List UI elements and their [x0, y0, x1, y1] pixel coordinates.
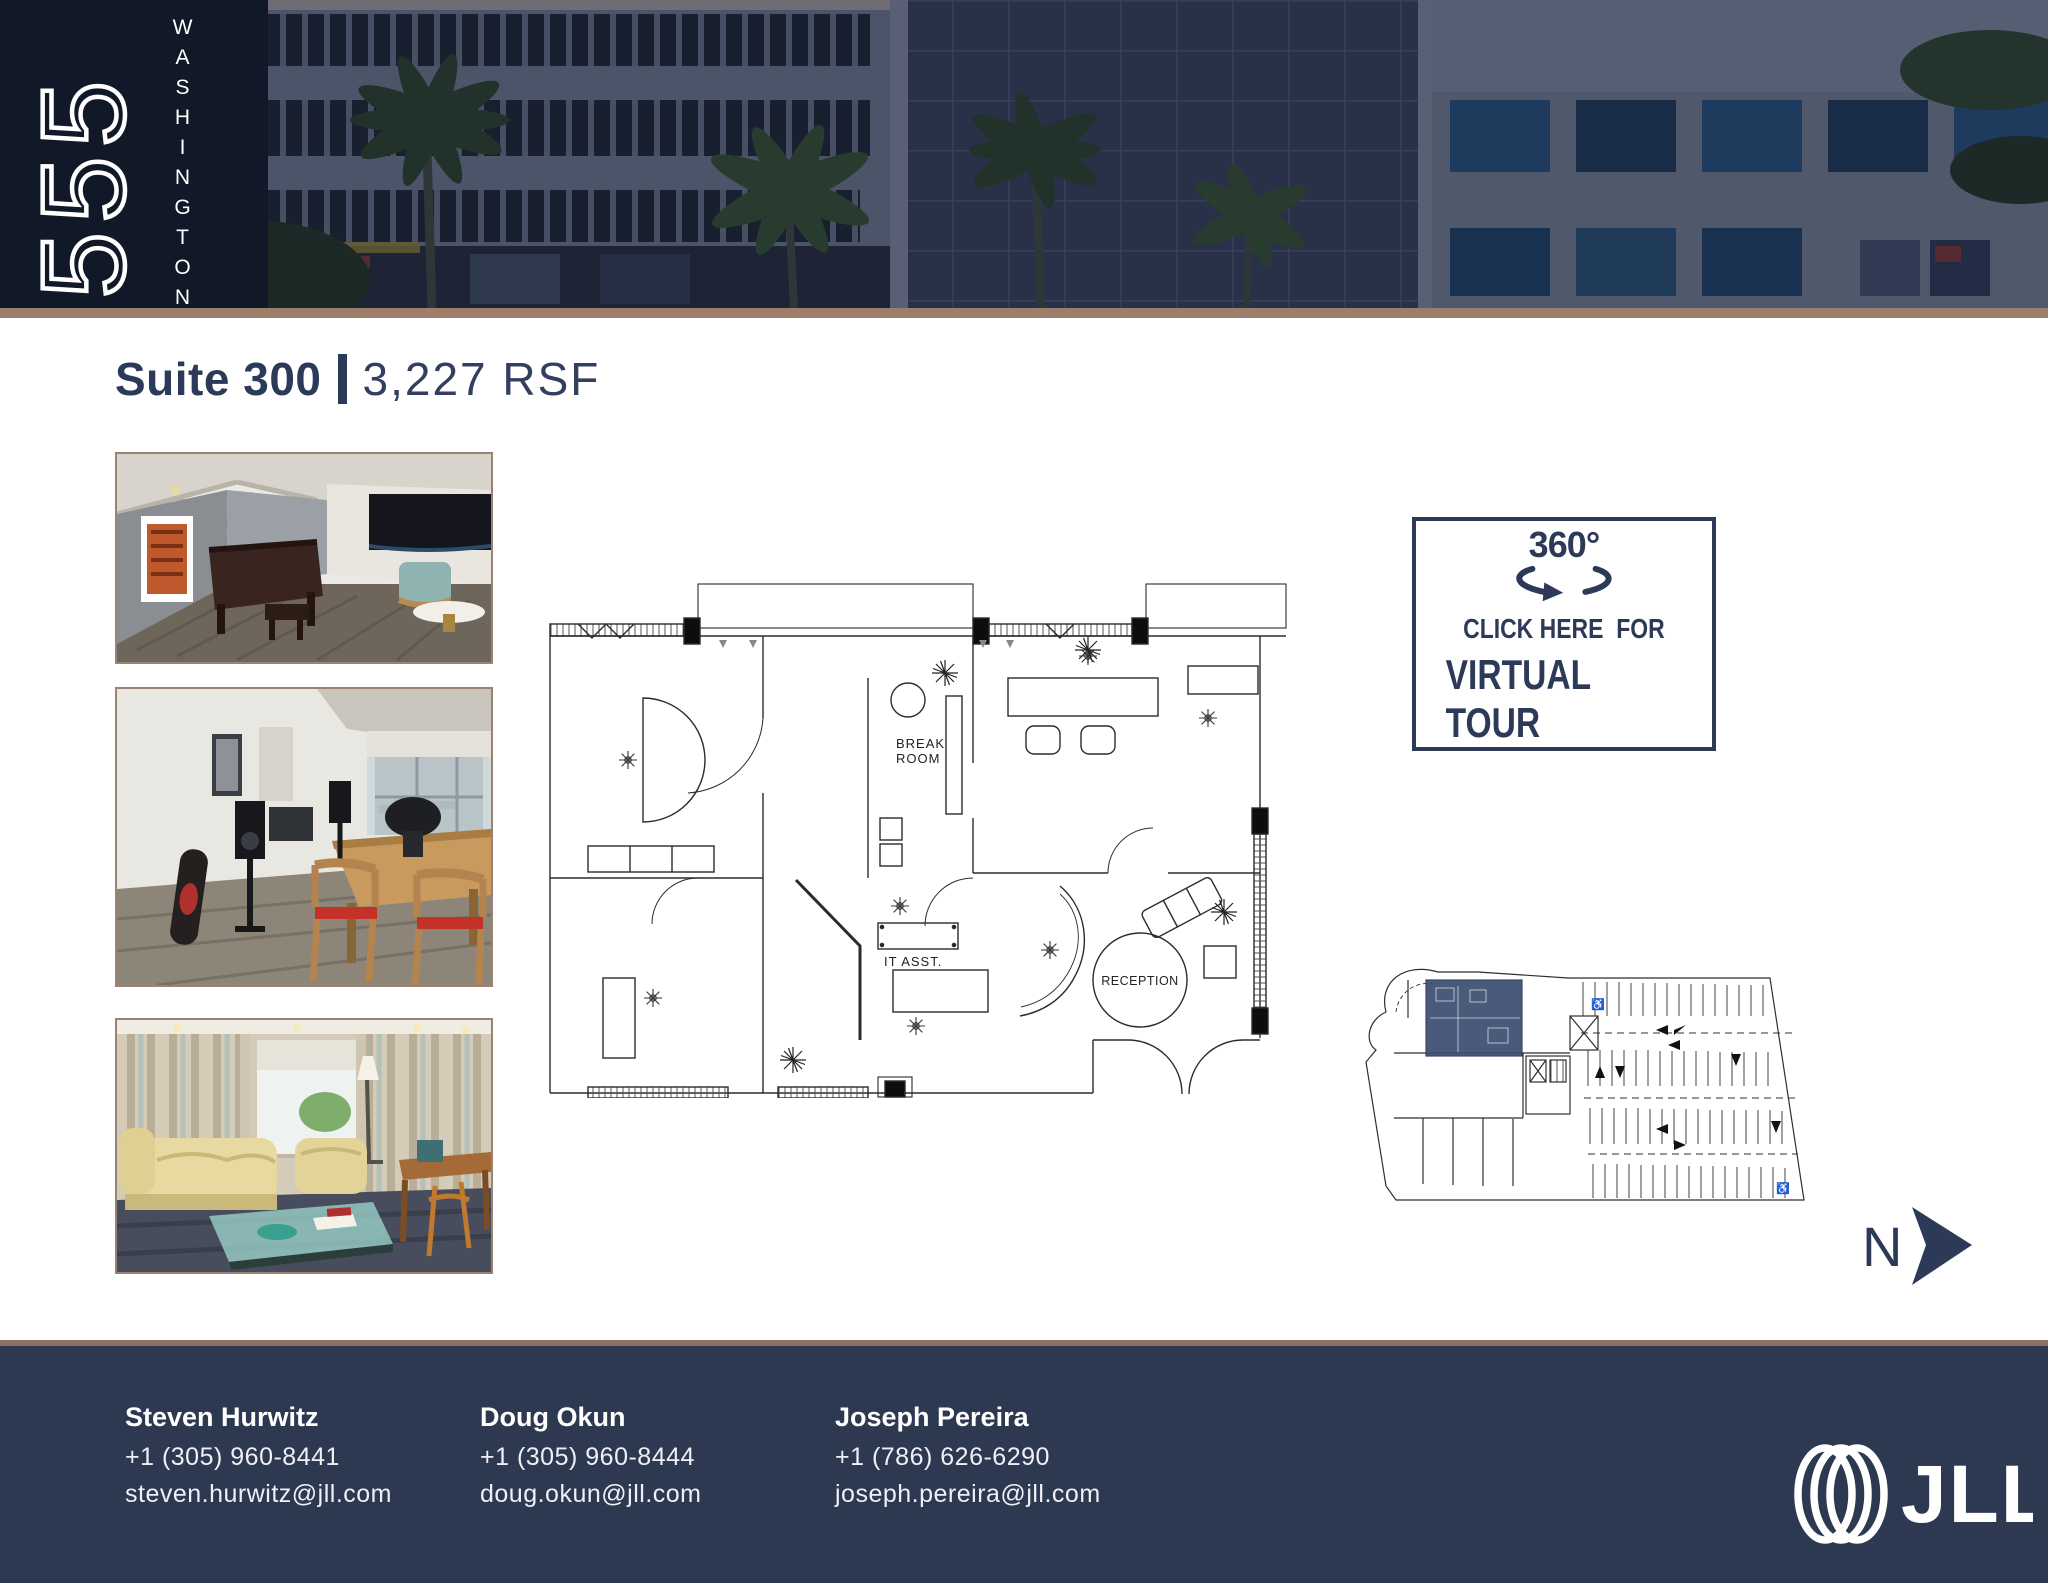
- north-arrow-icon: [1910, 1205, 1976, 1287]
- jll-wordmark: JLL: [1901, 1449, 2033, 1540]
- jll-logo: JLL: [1783, 1440, 2033, 1555]
- suite-floor-plan: BREAK ROOM IT ASST.: [548, 578, 1288, 1098]
- contact-steven-hurwitz: Steven Hurwitz +1 (305) 960-8441 steven.…: [125, 1402, 392, 1517]
- svg-text:BREAK: BREAK: [896, 736, 945, 751]
- svg-text:360°: 360°: [1529, 525, 1600, 565]
- jll-globe-icon: [1798, 1448, 1884, 1540]
- key-plan: ♿ ♿: [1338, 958, 1818, 1213]
- photo-lounge-piano-image: [117, 454, 491, 662]
- virtual-tour-line2: VIRTUAL TOUR: [1446, 651, 1683, 747]
- 555-washington-logo: 555 WASHINGTON: [0, 0, 268, 308]
- contact-email[interactable]: joseph.pereira@jll.com: [835, 1480, 1101, 1509]
- suite-size: 3,227 RSF: [363, 352, 601, 406]
- contact-name: Steven Hurwitz: [125, 1402, 392, 1433]
- photo-den-sofa-image: [117, 1020, 491, 1272]
- svg-text:♿: ♿: [1776, 1182, 1790, 1195]
- title-divider: [338, 354, 347, 404]
- photo-office-desk-image: [117, 689, 491, 985]
- logo-washington-text: WASHINGTON: [172, 16, 193, 302]
- virtual-tour-line1: CLICK HERE FOR: [1463, 613, 1665, 645]
- photo-office-desk: [115, 687, 493, 987]
- contact-doug-okun: Doug Okun +1 (305) 960-8444 doug.okun@jl…: [480, 1402, 702, 1517]
- north-indicator: N: [1862, 1205, 1976, 1287]
- contact-phone[interactable]: +1 (305) 960-8444: [480, 1443, 702, 1472]
- contact-email[interactable]: steven.hurwitz@jll.com: [125, 1480, 392, 1509]
- 360-rotation-icon: 360°: [1489, 521, 1639, 603]
- svg-text:555: 555: [22, 71, 150, 298]
- svg-text:RECEPTION: RECEPTION: [1101, 974, 1178, 988]
- contact-name: Joseph Pereira: [835, 1402, 1101, 1433]
- photo-lounge-piano: [115, 452, 493, 664]
- logo-555-numerals: 555: [22, 6, 182, 306]
- virtual-tour-button[interactable]: 360° CLICK HERE FOR VIRTUAL TOUR: [1412, 517, 1716, 751]
- photo-den-sofa: [115, 1018, 493, 1274]
- contact-joseph-pereira: Joseph Pereira +1 (786) 626-6290 joseph.…: [835, 1402, 1101, 1517]
- svg-text:ROOM: ROOM: [896, 751, 940, 766]
- header-divider-bar: [0, 308, 2048, 318]
- suite-name: Suite 300: [115, 352, 322, 406]
- north-label: N: [1862, 1214, 1902, 1279]
- flyer-page: 555 WASHINGTON Suite 300 3,227 RSF: [0, 0, 2048, 1583]
- contact-phone[interactable]: +1 (786) 626-6290: [835, 1443, 1101, 1472]
- contact-phone[interactable]: +1 (305) 960-8441: [125, 1443, 392, 1472]
- contact-name: Doug Okun: [480, 1402, 702, 1433]
- contact-email[interactable]: doug.okun@jll.com: [480, 1480, 702, 1509]
- building-photo: [0, 0, 2048, 308]
- svg-text:♿: ♿: [1591, 998, 1605, 1011]
- svg-text:IT ASST.: IT ASST.: [884, 954, 942, 969]
- suite-title: Suite 300 3,227 RSF: [115, 352, 600, 406]
